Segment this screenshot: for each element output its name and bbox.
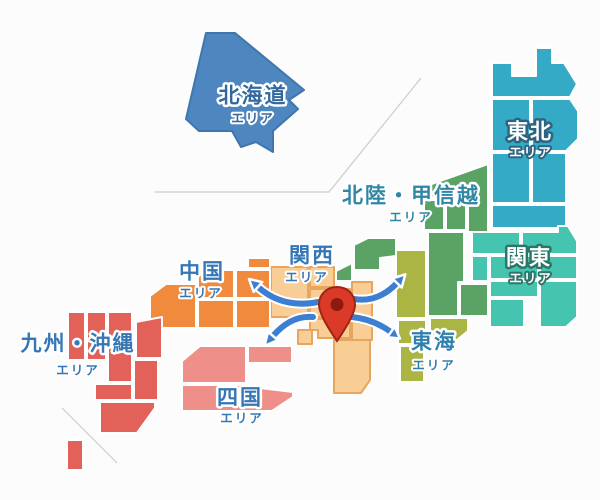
prefecture-shape: [134, 360, 158, 400]
prefecture-shape: [136, 317, 162, 358]
prefecture-shape: [490, 299, 524, 327]
prefecture-shape: [198, 300, 234, 328]
prefecture-shape: [248, 258, 270, 268]
prefecture-shape: [248, 346, 292, 363]
prefecture-shape: [428, 232, 464, 316]
label-chugoku-area: エリア: [179, 287, 223, 301]
label-shikoku-area: エリア: [220, 412, 264, 426]
label-tokai: 東海: [411, 330, 457, 354]
label-hokkaido: 北海道: [219, 84, 288, 108]
label-kansai: 関西: [289, 245, 335, 268]
label-kanto-area: エリア: [509, 272, 553, 286]
prefecture-shape: [540, 281, 577, 327]
prefecture-shape: [492, 153, 530, 203]
prefecture-shape: [472, 256, 488, 281]
prefecture-shape: [460, 284, 488, 316]
prefecture-shape: [492, 48, 577, 97]
label-kyushu-okinawa-area: エリア: [56, 364, 100, 378]
label-kansai-area: エリア: [285, 271, 329, 285]
prefecture-shape: [354, 238, 396, 270]
pin-dot: [331, 298, 344, 311]
prefecture-shape: [532, 153, 566, 203]
label-tokai-area: エリア: [412, 359, 456, 373]
prefecture-shape: [298, 330, 312, 344]
prefecture-shape: [100, 402, 155, 433]
prefecture-shape: [334, 340, 370, 393]
okinawa-shape: [67, 440, 83, 470]
prefecture-shape: [182, 346, 246, 383]
label-kyushu-okinawa: 九州・沖縄: [20, 333, 136, 356]
prefecture-shape: [236, 300, 270, 328]
prefecture-shape: [95, 384, 132, 400]
label-hokuriku-koshinetsu: 北陸・甲信越: [342, 184, 480, 208]
label-tohoku-area: エリア: [509, 146, 553, 160]
label-kanto: 関東: [506, 247, 552, 270]
label-shikoku: 四国: [217, 387, 263, 410]
label-hokkaido-area: エリア: [231, 112, 275, 126]
label-tohoku: 東北: [507, 121, 553, 144]
japan-area-map: 北海道 エリア 東北 エリア 北陸・甲信越 エリア 関東 エリア 関西 エリア …: [0, 0, 600, 500]
prefecture-shape: [492, 205, 566, 228]
prefecture-shape: [336, 263, 352, 281]
label-chugoku: 中国: [179, 261, 225, 284]
prefecture-shape: [352, 282, 372, 340]
label-hokuriku-koshinetsu-area: エリア: [389, 211, 433, 225]
japan-region-map-canvas: 北海道 エリア 東北 エリア 北陸・甲信越 エリア 関東 エリア 関西 エリア …: [0, 0, 600, 500]
